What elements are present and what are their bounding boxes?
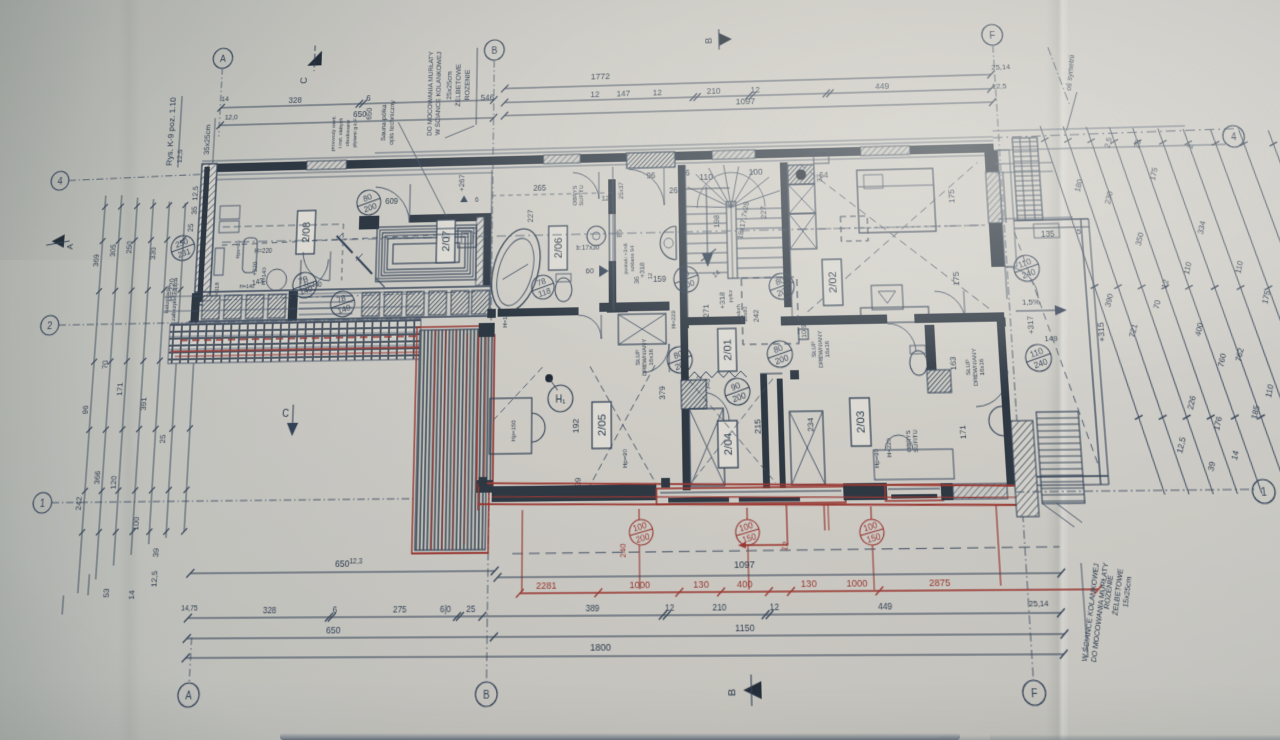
svg-text:12,5: 12,5 [192,186,200,201]
svg-text:328: 328 [288,95,302,105]
svg-text:H=229: H=229 [671,310,678,328]
svg-text:25,14: 25,14 [1029,600,1049,609]
svg-text:400: 400 [737,577,753,590]
svg-text:1097: 1097 [735,95,755,106]
svg-text:płytami g-k F: płytami g-k F [352,118,359,148]
svg-text:16x16: 16x16 [979,358,987,375]
svg-text:242: 242 [753,309,761,322]
svg-text:227: 227 [528,209,536,222]
svg-text:366: 366 [94,471,102,485]
svg-text:390: 390 [1105,293,1116,308]
svg-text:275: 275 [393,604,407,615]
svg-text:oś symetrii: oś symetrii [1065,54,1076,91]
svg-text:C: C [282,408,289,420]
svg-text:175: 175 [1149,167,1160,182]
svg-text:230: 230 [1104,190,1115,205]
svg-text:2281: 2281 [536,579,557,591]
svg-text:110: 110 [1235,260,1246,275]
svg-text:80x80: 80x80 [742,306,749,322]
svg-text:6: 6 [366,93,371,103]
svg-text:242: 242 [76,496,84,510]
svg-text:400: 400 [1195,322,1206,338]
svg-text:H=140: H=140 [261,267,268,285]
svg-text:650: 650 [335,558,350,569]
svg-text:Hp=150: Hp=150 [511,420,518,442]
svg-text:OBRYS: OBRYS [572,185,578,206]
svg-text:12,5: 12,5 [1176,436,1187,454]
svg-text:120: 120 [110,475,118,489]
svg-text:175: 175 [951,272,962,286]
svg-text:pustaki +3n8: pustaki +3n8 [623,243,630,274]
svg-text:37: 37 [816,173,824,182]
svg-text:Sauna-półka: Sauna-półka [380,104,388,141]
svg-text:271: 271 [703,304,711,318]
svg-text:b:17x30: b:17x30 [576,244,600,252]
svg-text:650: 650 [353,109,367,119]
svg-text:1000: 1000 [846,577,868,590]
svg-text:25: 25 [466,603,475,614]
svg-text:350: 350 [1135,232,1146,247]
svg-text:16x16: 16x16 [648,349,655,366]
svg-text:35: 35 [191,206,199,215]
svg-text:10 90: 10 90 [800,320,808,339]
svg-text:4: 4 [57,176,63,187]
svg-text:2: 2 [47,320,53,331]
svg-text:C: C [298,77,308,84]
svg-text:650: 650 [366,107,374,120]
svg-text:12: 12 [653,88,662,98]
svg-text:B: B [703,37,714,44]
svg-text:H₁: H₁ [555,393,565,405]
svg-text:zabezpieczająca: zabezpieczająca [171,278,180,321]
svg-text:2/02: 2/02 [827,271,840,293]
svg-text:110: 110 [699,172,713,182]
svg-text:12,3: 12,3 [349,557,363,566]
svg-text:762: 762 [1235,347,1246,363]
svg-text:Rys. K-9 poz. 1.10: Rys. K-9 poz. 1.10 [165,96,178,165]
svg-text:1,5%: 1,5% [1022,299,1040,307]
svg-text:70: 70 [1153,299,1163,310]
svg-text:2: 2 [1187,143,1196,150]
svg-text:B: B [483,688,490,701]
svg-text:210: 210 [712,602,726,613]
svg-text:328: 328 [263,605,277,616]
svg-text:12: 12 [648,273,655,280]
svg-text:147: 147 [616,89,630,99]
svg-text:16x16: 16x16 [824,341,831,358]
svg-text:+318: +318 [719,292,727,309]
svg-text:+318: +318 [639,262,647,278]
svg-text:+318: +318 [214,282,221,295]
svg-text:Hp=90: Hp=90 [622,449,629,468]
svg-text:609: 609 [385,196,398,206]
svg-text:14,75: 14,75 [181,604,199,613]
svg-text:12: 12 [751,85,761,95]
svg-text:2/06: 2/06 [553,237,565,258]
svg-text:334: 334 [1197,220,1208,235]
svg-text:Hps=80: Hps=80 [235,240,242,259]
svg-text:25x25cm: 25x25cm [446,71,454,100]
svg-text:369: 369 [93,254,101,267]
svg-text:25: 25 [160,434,168,443]
svg-text:2/04: 2/04 [723,432,736,455]
svg-text:1800: 1800 [590,641,611,654]
svg-text:25: 25 [188,223,196,232]
svg-text:25x37: 25x37 [619,182,626,199]
svg-text:163: 163 [950,356,959,370]
svg-text:przewody went.: przewody went. [330,116,337,152]
svg-text:96: 96 [82,405,90,414]
svg-text:14: 14 [1231,450,1241,462]
svg-text:+267: +267 [459,174,467,191]
svg-text:176: 176 [1213,416,1224,432]
svg-text:53: 53 [103,588,111,598]
svg-text:A: A [65,243,75,250]
svg-text:F: F [989,30,995,41]
svg-text:226: 226 [1187,395,1198,411]
svg-text:2/01: 2/01 [722,339,735,361]
svg-text:SUFITU: SUFITU [579,185,585,206]
svg-text:4: 4 [1230,131,1237,142]
svg-text:+315: +315 [1095,322,1107,342]
svg-text:389: 389 [585,603,599,614]
svg-text:650: 650 [326,625,342,636]
svg-text:SŁUP: SŁUP [635,349,642,366]
svg-text:180: 180 [1074,178,1085,193]
svg-text:pyłcz: pyłcz [728,289,735,302]
svg-text:1097: 1097 [734,558,756,571]
svg-text:12: 12 [1161,279,1171,290]
svg-text:39: 39 [1208,461,1218,473]
svg-text:1: 1 [39,497,45,509]
svg-text:6: 6 [332,604,337,615]
svg-text:H=148: H=148 [503,310,510,328]
svg-text:18x17,7x28: 18x17,7x28 [737,201,751,240]
svg-text:12: 12 [590,90,599,100]
svg-text:379: 379 [659,386,667,400]
svg-text:149: 149 [1044,335,1058,343]
svg-text:B: B [491,45,497,56]
svg-text:12: 12 [770,601,780,612]
svg-text:ŻELBETOWE: ŻELBETOWE [453,63,463,107]
svg-text:2/05: 2/05 [597,414,609,436]
svg-text:39: 39 [153,548,161,558]
svg-text:2/03: 2/03 [855,411,868,433]
svg-text:6: 6 [475,196,479,204]
svg-text:+317: +317 [1027,316,1036,335]
svg-text:171: 171 [117,382,125,396]
svg-text:240: 240 [620,543,628,557]
svg-text:265: 265 [533,183,546,193]
svg-text:760: 760 [1218,352,1229,368]
svg-text:721: 721 [1129,323,1140,339]
svg-text:175: 175 [946,189,957,203]
svg-text:130: 130 [693,578,709,591]
svg-text:171: 171 [960,425,969,439]
svg-text:14: 14 [129,590,137,600]
svg-text:ROZENIE: ROZENIE [464,69,472,101]
svg-text:szklane 94: szklane 94 [630,245,637,271]
svg-text:449: 449 [875,81,890,91]
svg-text:110: 110 [1183,261,1194,276]
svg-text:12,0: 12,0 [225,114,239,122]
svg-text:175: 175 [1262,290,1273,306]
svg-text:A: A [185,689,192,702]
svg-text:25,14: 25,14 [991,64,1011,72]
svg-text:449: 449 [878,601,893,612]
svg-text:1772: 1772 [591,70,611,81]
svg-text:100: 100 [748,167,763,177]
svg-text:6|0: 6|0 [440,604,452,615]
svg-text:1150: 1150 [735,622,755,633]
svg-text:12,5: 12,5 [177,149,185,163]
svg-text:70: 70 [102,360,110,369]
svg-text:H=140: H=140 [239,284,255,291]
svg-text:2875: 2875 [929,576,951,589]
svg-text:130: 130 [801,577,818,590]
svg-text:210: 210 [707,86,722,96]
svg-text:1000: 1000 [629,578,650,591]
svg-text:25: 25 [1134,139,1144,150]
svg-text:159: 159 [653,274,667,284]
svg-text:A: A [220,53,227,64]
svg-text:12: 12 [665,602,675,613]
svg-text:14: 14 [711,268,722,279]
svg-text:DREWNIANY: DREWNIANY [642,338,649,376]
svg-text:12,5: 12,5 [992,83,1007,91]
svg-text:192: 192 [571,419,581,434]
svg-text:227: 227 [761,206,769,219]
svg-text:100: 100 [133,516,141,530]
svg-text:391: 391 [140,397,148,411]
svg-text:Hp=90: Hp=90 [874,449,882,468]
svg-text:185: 185 [1251,404,1262,420]
svg-text:F: F [1031,686,1038,699]
svg-text:14: 14 [221,96,229,104]
svg-text:26: 26 [669,185,678,195]
svg-text:234: 234 [807,418,815,432]
svg-text:305: 305 [110,244,118,257]
svg-text:B: B [726,688,738,696]
svg-text:110: 110 [1265,383,1276,398]
svg-text:35x25cm: 35x25cm [204,124,213,155]
svg-text:198: 198 [714,215,722,228]
svg-text:330: 330 [150,247,158,260]
svg-text:obudowane: obudowane [345,119,352,146]
svg-text:60: 60 [586,268,594,276]
svg-text:opis techniczny: opis techniczny [388,99,396,145]
svg-text:12,5: 12,5 [151,571,160,588]
